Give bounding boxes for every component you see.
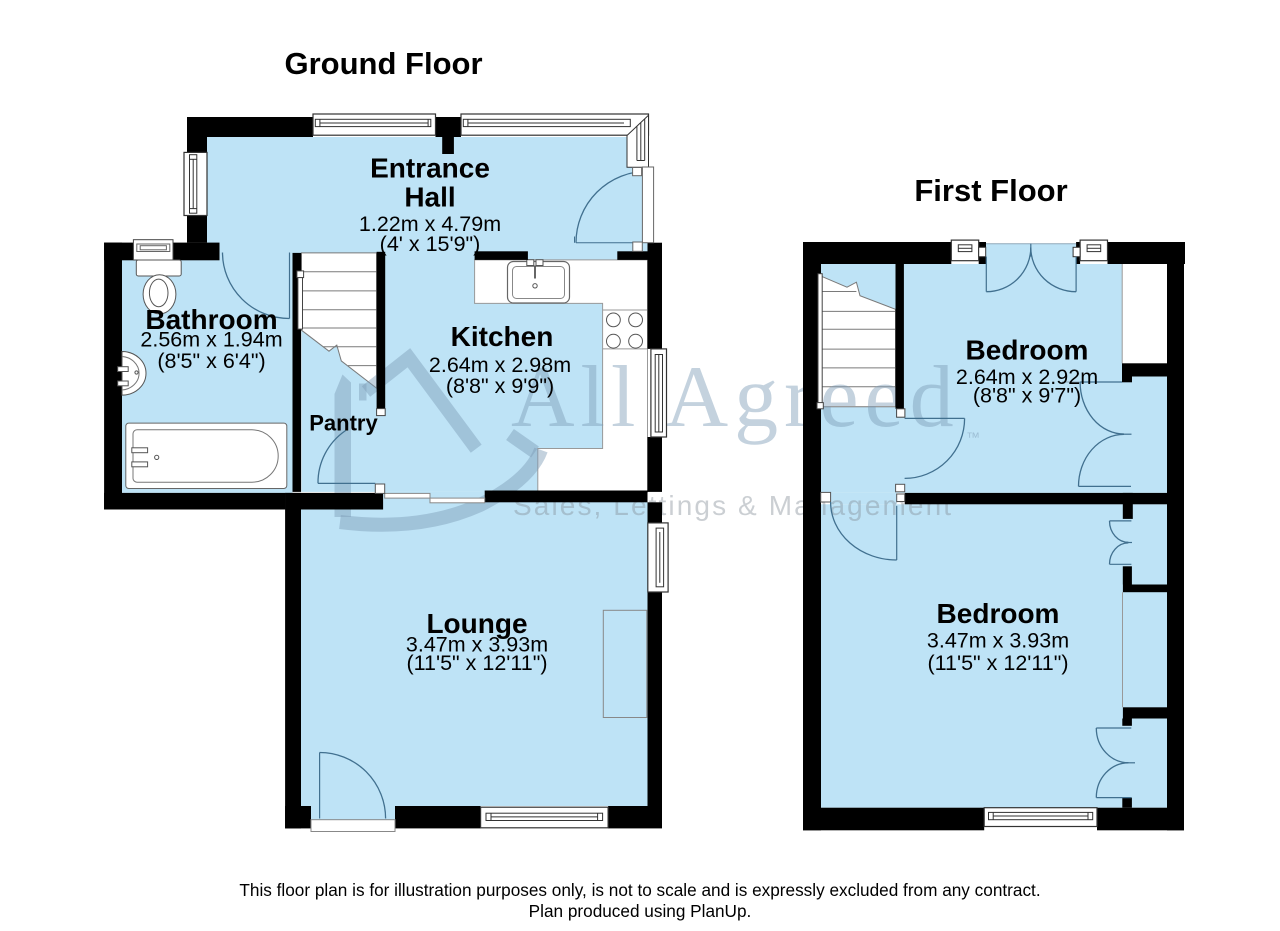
svg-text:All Agreed: All Agreed — [511, 349, 960, 446]
svg-text:(8'8" x 9'7"): (8'8" x 9'7") — [973, 384, 1081, 408]
svg-text:Bedroom: Bedroom — [937, 598, 1060, 629]
svg-text:(11'5" x 12'11"): (11'5" x 12'11") — [407, 651, 548, 675]
svg-text:Plan produced using PlanUp.: Plan produced using PlanUp. — [529, 901, 752, 921]
svg-text:Kitchen: Kitchen — [451, 321, 554, 352]
svg-text:(11'5" x 12'11"): (11'5" x 12'11") — [928, 651, 1069, 675]
svg-text:First Floor: First Floor — [914, 173, 1067, 208]
svg-text:(8'5" x 6'4"): (8'5" x 6'4") — [157, 349, 265, 373]
svg-text:Entrance: Entrance — [370, 152, 490, 183]
svg-text:™: ™ — [966, 429, 980, 445]
svg-text:Ground Floor: Ground Floor — [284, 46, 482, 81]
svg-text:2.56m x 1.94m: 2.56m x 1.94m — [140, 327, 282, 351]
svg-text:Bedroom: Bedroom — [966, 334, 1089, 365]
svg-text:Hall: Hall — [404, 182, 455, 213]
svg-text:(8'8" x 9'9"): (8'8" x 9'9") — [446, 374, 554, 398]
svg-text:This floor plan is for illustr: This floor plan is for illustration purp… — [239, 880, 1040, 900]
svg-text:3.47m x 3.93m: 3.47m x 3.93m — [927, 629, 1069, 653]
svg-text:(4' x 15'9"): (4' x 15'9") — [380, 232, 481, 256]
svg-text:Pantry: Pantry — [309, 411, 378, 436]
